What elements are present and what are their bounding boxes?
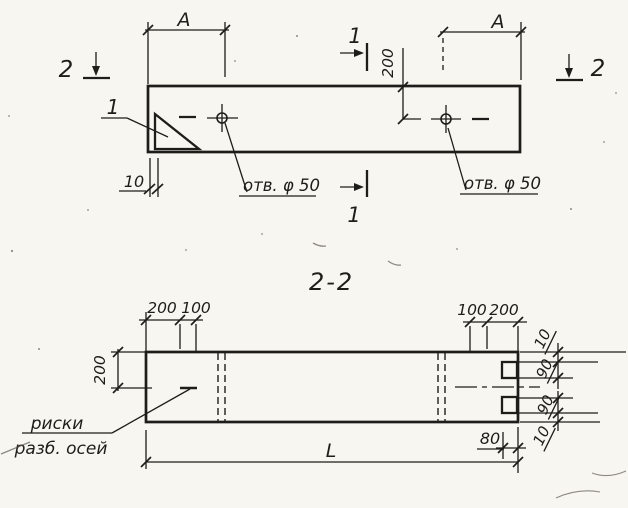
dim-A-right: A xyxy=(438,11,526,80)
detail-triangle xyxy=(155,114,199,149)
bottom-view: 200 100 100 200 200 xyxy=(14,299,626,473)
section-1-top-arrow xyxy=(354,49,364,57)
dim-200-tr-label: 200 xyxy=(489,301,519,319)
hole-diameter-label-right: отв. φ 50 xyxy=(464,174,541,193)
axis-note: риски разб. осей xyxy=(14,389,190,459)
section-1-bottom-arrow xyxy=(354,183,364,191)
dim-10-right-top: 10 xyxy=(529,323,557,354)
axis-note-leader xyxy=(112,389,190,433)
detail-mark-label: 1 xyxy=(107,95,120,119)
section-mark-1-top: 1 xyxy=(340,24,367,71)
dim-L: L xyxy=(141,430,523,469)
dim-A-left: A xyxy=(143,9,230,84)
section-2-left-arrow xyxy=(92,66,100,76)
section-title: 2-2 xyxy=(309,268,354,296)
dim-80-label: 80 xyxy=(480,429,500,448)
section-2-right-label: 2 xyxy=(591,56,606,82)
dim-L-label: L xyxy=(326,440,337,462)
section-2-left-label: 2 xyxy=(59,57,74,83)
technical-drawing: 1 отв. φ 50 отв. φ 50 xyxy=(0,0,628,508)
hole-callout-right: отв. φ 50 xyxy=(448,128,541,194)
section-mark-2-left: 2 xyxy=(59,52,110,83)
dim-10-top-view: 10 xyxy=(119,158,163,197)
svg-text:10: 10 xyxy=(529,423,554,448)
dims-top-left: 200 100 xyxy=(139,299,211,351)
scanned-drawing-sheet: 1 отв. φ 50 отв. φ 50 xyxy=(0,0,628,508)
svg-text:10: 10 xyxy=(530,326,555,351)
beam-outline-plan xyxy=(148,86,520,152)
axis-note-line2: разб. осей xyxy=(14,439,108,459)
recess-bottom xyxy=(502,397,517,413)
hole-callout-left: отв. φ 50 xyxy=(225,123,320,196)
axis-note-line1: риски xyxy=(30,414,84,434)
dim-200-label: 200 xyxy=(379,48,397,78)
dim-200-tl-label: 200 xyxy=(147,299,177,317)
section-1-top-label: 1 xyxy=(348,24,361,48)
dim-200-left: 200 xyxy=(91,347,152,393)
dim-200-left-label: 200 xyxy=(91,355,109,385)
scan-artifacts xyxy=(1,35,626,498)
dim-80: 80 xyxy=(477,427,526,473)
dim-90-right-top: 90 xyxy=(531,354,558,383)
section-1-bottom-label: 1 xyxy=(347,203,360,227)
dim-100-tl-label: 100 xyxy=(181,299,211,317)
dim-A-left-label: A xyxy=(176,9,191,31)
dim-10-right-bottom: 10 xyxy=(528,420,556,451)
dim-100-tr-label: 100 xyxy=(457,301,487,319)
top-view: 1 отв. φ 50 отв. φ 50 xyxy=(59,9,606,227)
section-mark-2-right: 2 xyxy=(556,54,605,82)
hole-diameter-label-left: отв. φ 50 xyxy=(243,176,320,195)
section-2-right-arrow xyxy=(565,68,573,78)
section-mark-1-bottom: 1 xyxy=(340,170,367,227)
recess-top xyxy=(502,362,517,378)
hole-right xyxy=(431,105,489,133)
dim-10-label: 10 xyxy=(124,172,144,191)
dims-top-right: 100 200 xyxy=(457,301,527,351)
dim-A-right-label: A xyxy=(490,11,505,33)
hole-left xyxy=(179,104,238,132)
